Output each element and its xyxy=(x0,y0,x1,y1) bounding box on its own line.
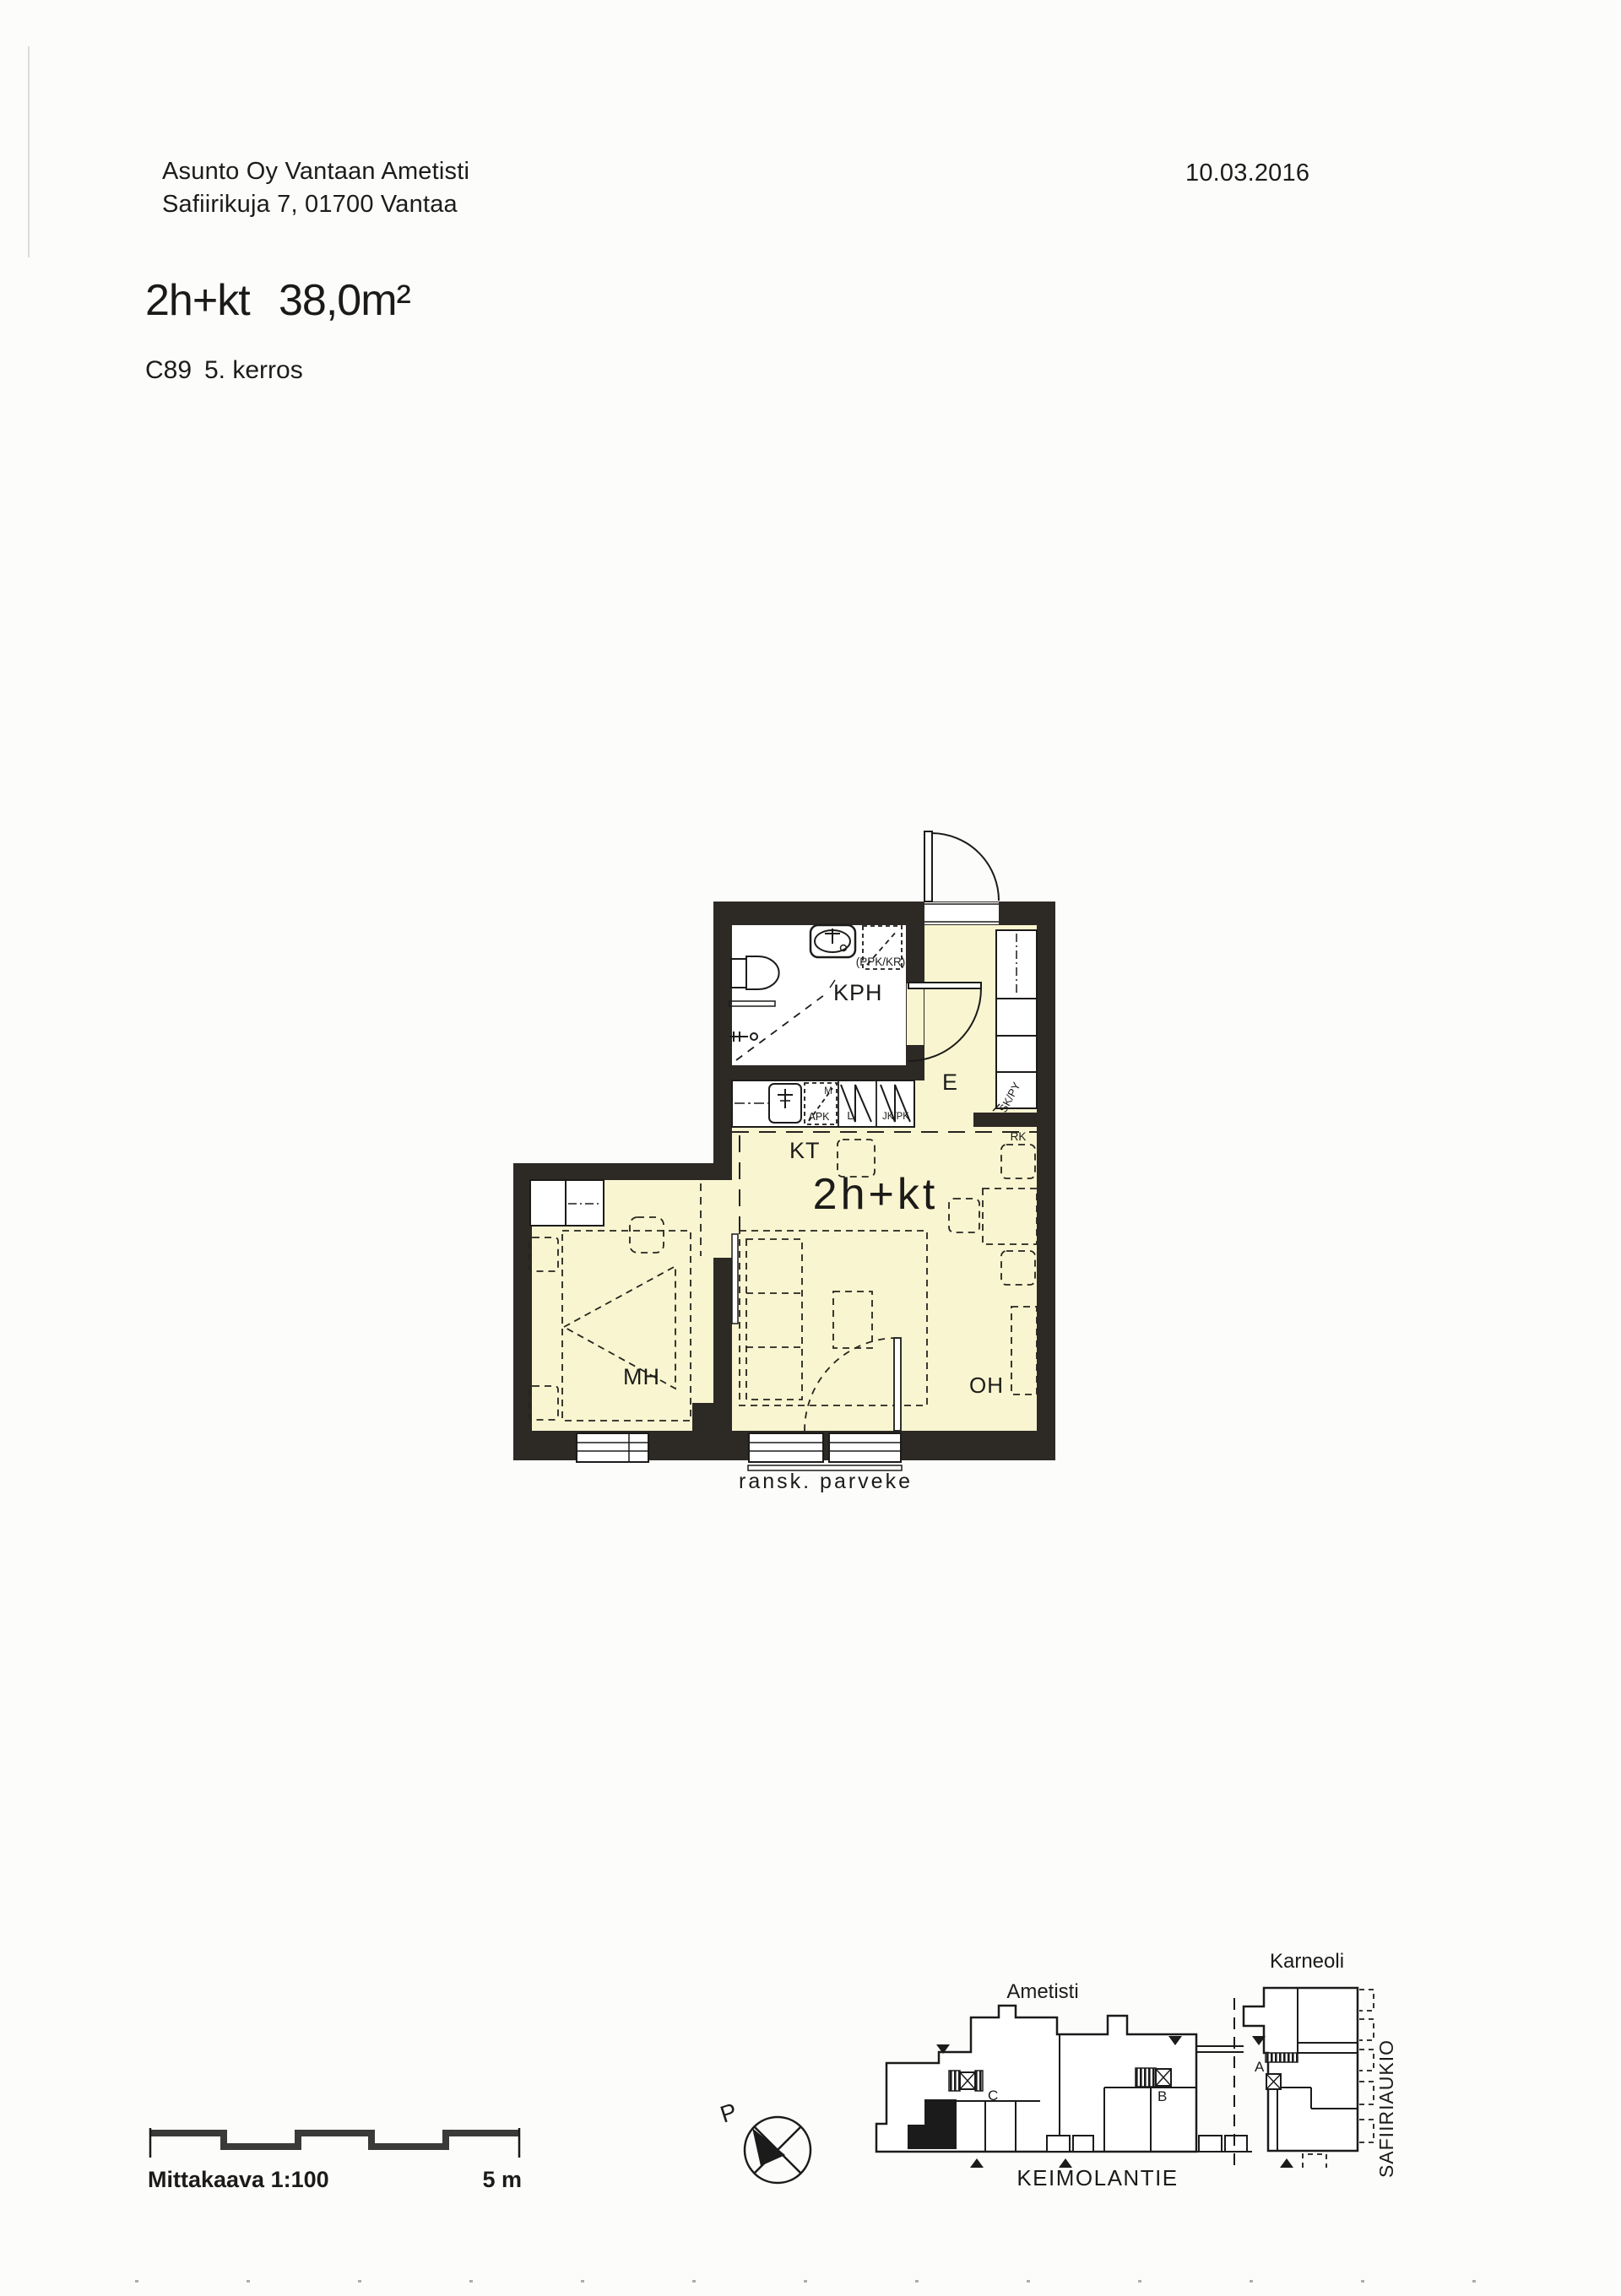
page-footer-graphics: Mittakaava 1:100 5 m P xyxy=(118,1925,1435,2296)
stairwell-label-a: A xyxy=(1255,2059,1265,2075)
street-label: KEIMOLANTIE xyxy=(1017,2165,1178,2190)
scale-bar: Mittakaava 1:100 5 m xyxy=(148,2128,522,2192)
scale-end-label: 5 m xyxy=(482,2167,522,2192)
stairwell-label-b: B xyxy=(1157,2088,1167,2104)
apartment-number: C89 xyxy=(145,356,192,385)
unit-type-label: 2h+kt xyxy=(813,1170,939,1219)
entrance-door-leaf xyxy=(924,831,932,902)
apartment-type: 2h+kt xyxy=(145,275,250,326)
sliding-door-leaf xyxy=(732,1234,738,1324)
stairwell-a-icon xyxy=(1266,2074,1281,2089)
room-label-entry: E xyxy=(942,1069,958,1095)
scanned-floor-plan-page: { "header": { "building": "Asunto Oy Van… xyxy=(0,0,1621,2292)
document-date: 10.03.2016 xyxy=(1185,157,1309,190)
scale-label: Mittakaava 1:100 xyxy=(148,2167,329,2192)
stairwell-label-c: C xyxy=(988,2088,998,2104)
stairwell-c-icon xyxy=(949,2071,983,2091)
microwave-label: M xyxy=(824,1086,832,1097)
building-label-karneoli: Karneoli xyxy=(1270,1950,1344,1973)
room-label-bedroom: MH xyxy=(623,1364,660,1389)
bedroom-window xyxy=(577,1433,648,1462)
floor-plan: KPH E KT MH OH 2h+kt (PPK/KR) APK M L JK… xyxy=(498,810,1072,1503)
scan-artifact-left-edge xyxy=(28,46,30,257)
north-label: P xyxy=(717,2098,740,2127)
compass: P xyxy=(717,2098,810,2183)
toilet-tank xyxy=(731,959,746,988)
bedroom-wardrobe xyxy=(530,1180,604,1226)
entrance-door xyxy=(924,831,999,924)
bathroom-sink xyxy=(810,925,855,957)
stairwell-a-hatch xyxy=(1266,2053,1298,2062)
building-address: Safiirikuja 7, 01700 Vantaa xyxy=(162,188,458,221)
living-room-window xyxy=(749,1433,823,1462)
distribution-board-label: RK xyxy=(1011,1130,1027,1143)
dishwasher-label: APK xyxy=(808,1111,830,1123)
building-name: Asunto Oy Vantaan Ametisti xyxy=(162,155,469,188)
room-label-bathroom: KPH xyxy=(833,980,883,1005)
site-plan xyxy=(876,1988,1374,2168)
balcony-label: ransk. parveke xyxy=(739,1470,913,1493)
fridge-label: JK/PK xyxy=(882,1112,909,1122)
kitchen-sink xyxy=(769,1084,801,1123)
entrance-door-swing xyxy=(932,833,999,901)
apartment-area: 38,0m² xyxy=(279,275,410,326)
room-label-living: OH xyxy=(969,1373,1004,1398)
stove-label: L xyxy=(847,1109,853,1122)
washer-reservation-label: (PPK/KR) xyxy=(856,956,906,968)
square-label: SAFIIRIAUKIO xyxy=(1375,2039,1397,2178)
toilet-bowl xyxy=(746,956,779,989)
bathroom-door-leaf xyxy=(908,983,981,988)
balcony-door-window xyxy=(829,1433,901,1462)
building-label-ametisti: Ametisti xyxy=(1006,1980,1078,2003)
balcony-door-leaf xyxy=(894,1338,901,1431)
room-label-kitchen: KT xyxy=(789,1138,821,1163)
apartment-floor: 5. kerros xyxy=(204,356,303,385)
stairwell-b-icon xyxy=(1136,2068,1171,2087)
